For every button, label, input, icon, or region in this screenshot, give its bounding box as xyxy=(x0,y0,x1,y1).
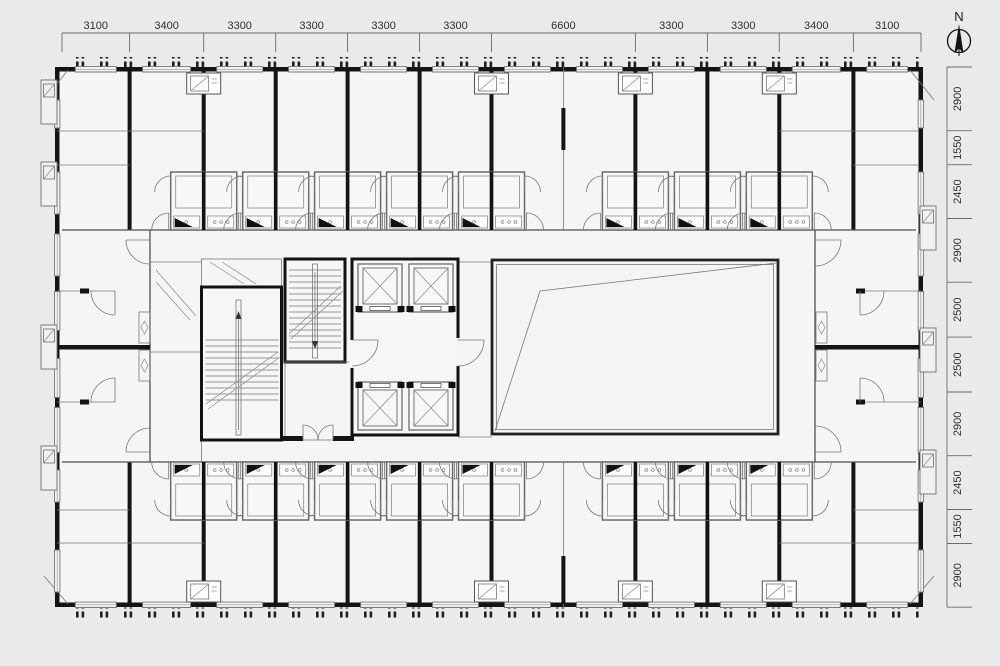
dim-label-top-3: 3300 xyxy=(227,20,251,32)
dim-label-right-2: 1550 xyxy=(952,135,964,159)
dim-label-right-3: 2450 xyxy=(952,179,964,203)
dim-label-right-4: 2900 xyxy=(952,238,964,262)
floor-plan-page: 3100 3400 3300 3300 3300 3300 6600 3300 … xyxy=(0,0,1000,666)
dim-label-right-8: 2450 xyxy=(952,470,964,494)
stair-1 xyxy=(202,287,282,440)
north-label: N xyxy=(954,9,963,24)
dim-label-top-6: 3300 xyxy=(443,20,467,32)
void-opening xyxy=(492,260,778,434)
dim-label-right-5: 2500 xyxy=(952,297,964,321)
dim-label-top-11: 3100 xyxy=(875,20,899,32)
dim-label-top-5: 3300 xyxy=(371,20,395,32)
dim-label-right-7: 2900 xyxy=(952,412,964,436)
dim-label-top-10: 3400 xyxy=(804,20,828,32)
elevator-shaft xyxy=(356,264,405,312)
dim-label-top-7: 6600 xyxy=(551,20,575,32)
plan-background xyxy=(59,69,919,605)
dim-label-top-8: 3300 xyxy=(659,20,683,32)
dimension-string-right: 2900 1550 2450 2900 2500 2500 2900 2450 … xyxy=(947,67,972,607)
elevator-shaft xyxy=(407,382,456,430)
dim-label-top-1: 3100 xyxy=(84,20,108,32)
dim-label-top-4: 3300 xyxy=(299,20,323,32)
dim-label-right-1: 2900 xyxy=(952,87,964,111)
dim-label-top-9: 3300 xyxy=(731,20,755,32)
dim-label-right-9: 1550 xyxy=(952,514,964,538)
dimension-string-top: 3100 3400 3300 3300 3300 3300 6600 3300 … xyxy=(62,20,921,52)
elevator-shaft xyxy=(356,382,405,430)
floor-plan-drawing: 3100 3400 3300 3300 3300 3300 6600 3300 … xyxy=(0,0,1000,666)
north-arrow: N xyxy=(948,9,971,56)
dim-label-right-10: 2900 xyxy=(952,563,964,587)
dim-label-right-6: 2500 xyxy=(952,352,964,376)
dim-label-top-2: 3400 xyxy=(154,20,178,32)
elevator-shaft xyxy=(407,264,456,312)
stair-2 xyxy=(285,259,345,362)
